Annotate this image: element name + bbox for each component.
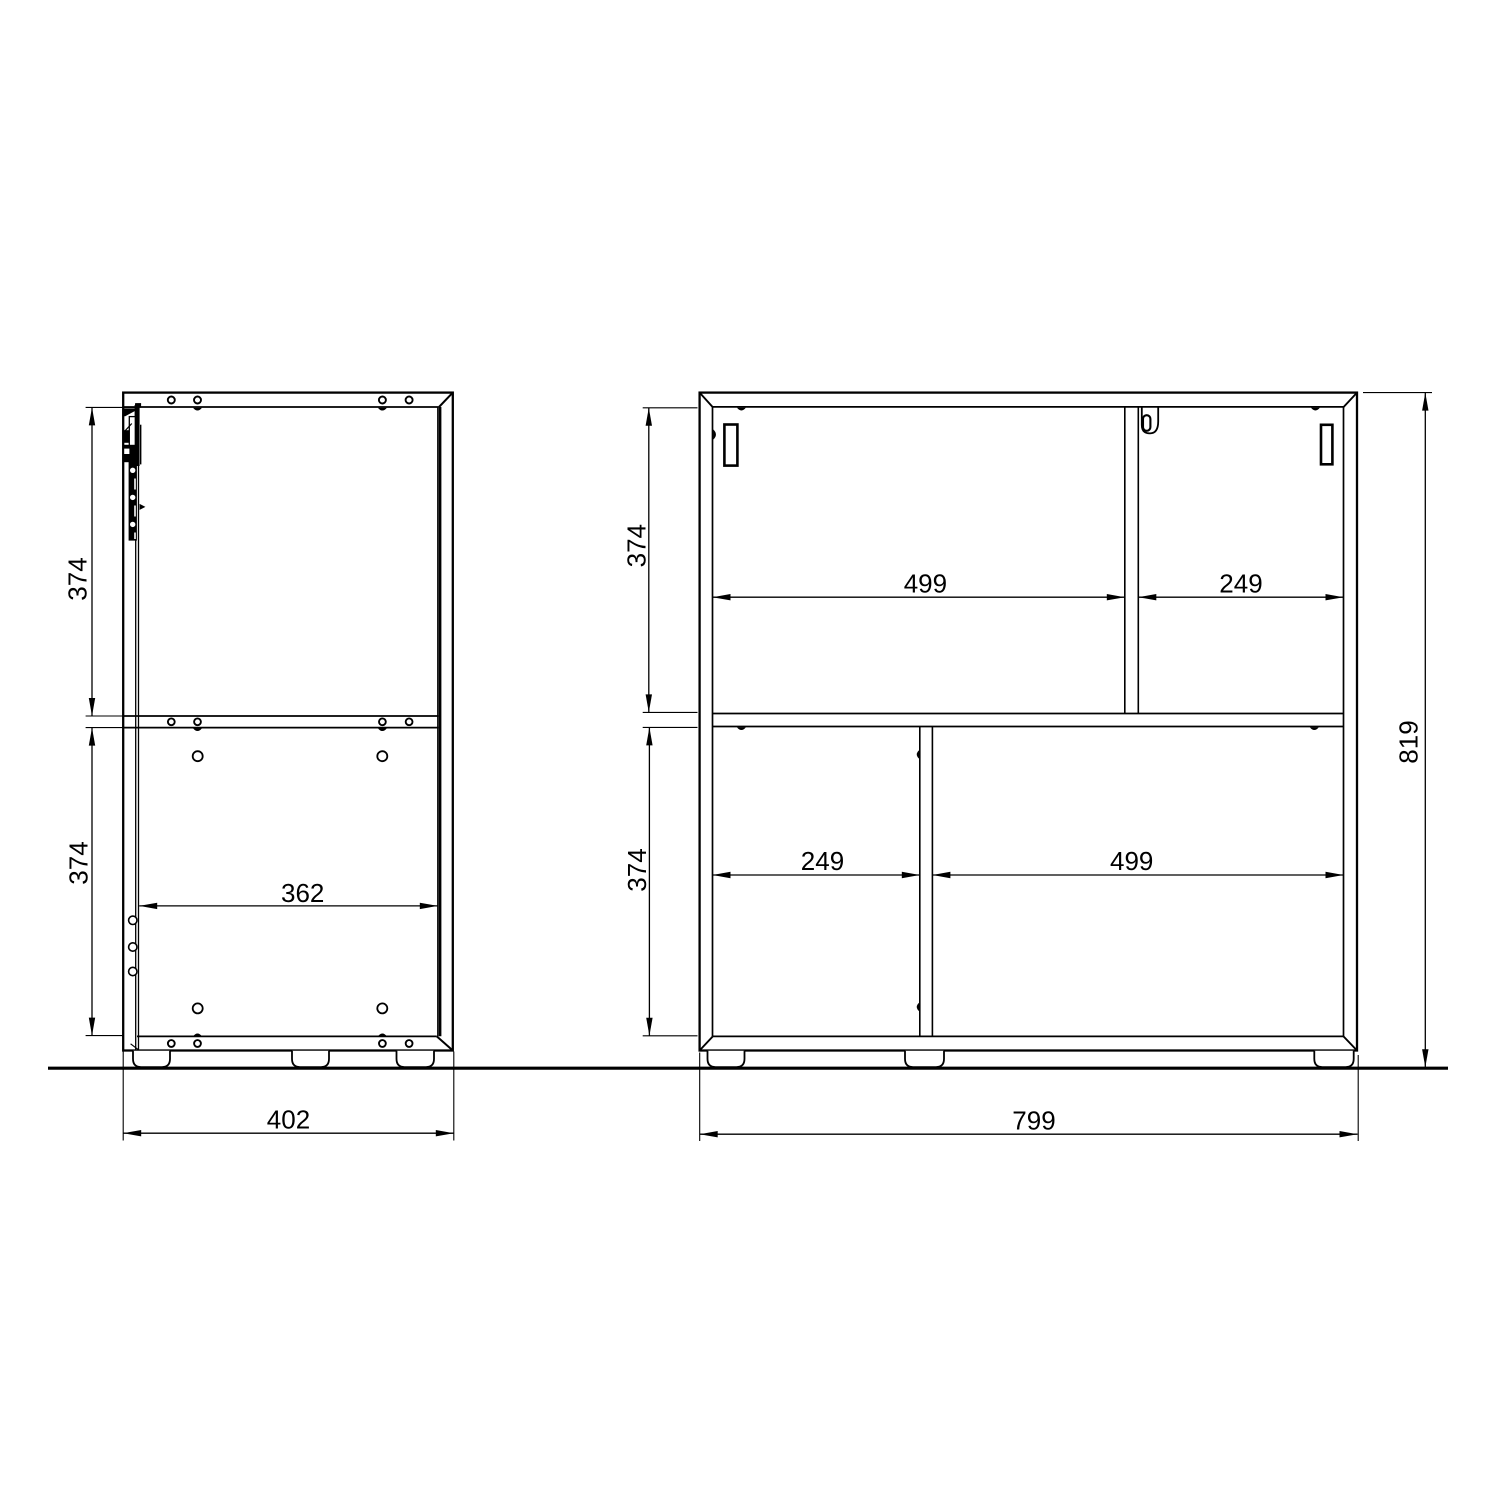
svg-text:374: 374 [622,848,652,891]
svg-text:499: 499 [1110,846,1153,876]
svg-text:402: 402 [267,1105,310,1135]
svg-text:249: 249 [1219,569,1262,599]
svg-text:249: 249 [801,846,844,876]
svg-text:374: 374 [64,841,94,884]
svg-text:799: 799 [1012,1106,1055,1136]
svg-text:362: 362 [281,878,324,908]
svg-text:499: 499 [904,569,947,599]
svg-text:374: 374 [63,557,93,600]
svg-text:819: 819 [1394,720,1424,763]
svg-text:374: 374 [621,524,651,567]
